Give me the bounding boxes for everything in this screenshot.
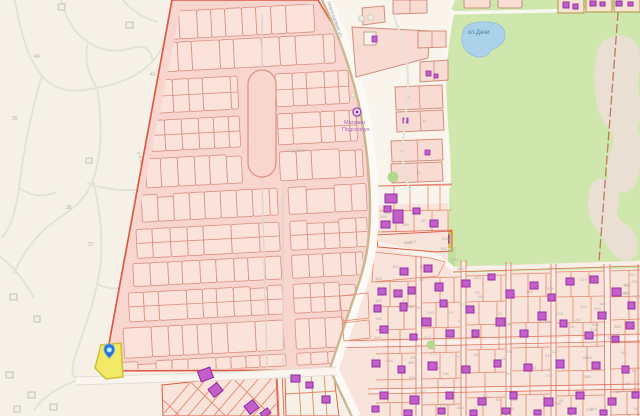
svg-text:267: 267: [575, 317, 582, 322]
svg-text:192: 192: [477, 294, 484, 299]
svg-text:112: 112: [473, 352, 480, 357]
svg-text:241: 241: [506, 349, 513, 354]
svg-text:381: 381: [416, 305, 423, 310]
svg-text:62: 62: [583, 355, 588, 360]
svg-text:346: 346: [590, 406, 597, 411]
svg-text:120: 120: [628, 272, 635, 277]
svg-text:147: 147: [419, 389, 426, 394]
svg-text:92: 92: [559, 398, 564, 403]
svg-text:183: 183: [599, 301, 606, 306]
svg-text:Магазин: Магазин: [344, 120, 365, 126]
svg-text:Садовая: Садовая: [287, 148, 306, 153]
svg-text:86: 86: [532, 365, 537, 370]
svg-text:77: 77: [457, 319, 462, 324]
svg-text:37: 37: [88, 242, 94, 248]
svg-text:147: 147: [634, 294, 640, 299]
svg-text:138: 138: [442, 371, 449, 376]
svg-text:64: 64: [496, 397, 501, 402]
svg-text:18: 18: [570, 324, 575, 329]
svg-text:226: 226: [442, 236, 449, 241]
svg-text:368: 368: [614, 324, 621, 329]
svg-text:89: 89: [625, 381, 630, 386]
svg-text:163: 163: [526, 289, 533, 294]
svg-text:269: 269: [547, 286, 554, 291]
svg-text:371: 371: [631, 279, 638, 284]
svg-text:89: 89: [548, 367, 553, 372]
svg-text:102: 102: [392, 264, 399, 269]
svg-text:169: 169: [440, 246, 447, 251]
svg-text:399: 399: [505, 322, 512, 327]
svg-text:392: 392: [407, 304, 414, 309]
svg-text:47: 47: [402, 298, 407, 303]
svg-text:39: 39: [12, 116, 18, 122]
svg-text:389: 389: [408, 360, 415, 365]
svg-text:56: 56: [510, 406, 515, 411]
svg-text:263: 263: [474, 275, 481, 280]
svg-text:214: 214: [440, 228, 447, 233]
svg-text:135: 135: [375, 316, 382, 321]
svg-text:273: 273: [430, 351, 437, 356]
svg-text:14: 14: [422, 118, 427, 123]
svg-text:52: 52: [419, 277, 424, 282]
svg-text:339: 339: [410, 355, 417, 360]
svg-text:19: 19: [455, 354, 460, 359]
svg-text:344: 344: [594, 306, 601, 311]
svg-text:кл.Дачи: кл.Дачи: [468, 30, 490, 36]
svg-text:103: 103: [375, 298, 382, 303]
svg-text:134: 134: [548, 266, 555, 271]
svg-text:63: 63: [632, 368, 637, 373]
svg-text:101: 101: [447, 310, 454, 315]
svg-text:290: 290: [440, 402, 447, 407]
svg-text:112: 112: [496, 311, 503, 316]
svg-text:Подсолнух: Подсолнух: [342, 127, 370, 133]
svg-text:269: 269: [505, 371, 512, 376]
svg-text:379: 379: [580, 277, 587, 282]
svg-text:109: 109: [580, 304, 587, 309]
svg-text:18: 18: [416, 170, 421, 175]
svg-text:76: 76: [633, 406, 638, 411]
svg-text:60: 60: [421, 218, 426, 223]
svg-text:40: 40: [34, 54, 40, 60]
svg-text:121: 121: [410, 239, 417, 244]
svg-text:376: 376: [409, 375, 416, 380]
svg-text:244: 244: [386, 358, 393, 363]
svg-text:113: 113: [615, 389, 622, 394]
svg-text:310: 310: [427, 310, 434, 315]
svg-text:320: 320: [457, 405, 464, 410]
svg-text:278: 278: [556, 311, 563, 316]
svg-text:331: 331: [592, 322, 599, 327]
svg-text:142: 142: [620, 350, 627, 355]
svg-text:24: 24: [501, 356, 506, 361]
svg-text:322: 322: [424, 335, 431, 340]
svg-text:309: 309: [451, 257, 458, 262]
svg-text:127: 127: [552, 349, 559, 354]
svg-text:92: 92: [440, 376, 445, 381]
svg-text:67: 67: [449, 402, 454, 407]
svg-text:388: 388: [584, 374, 591, 379]
svg-text:374: 374: [590, 327, 597, 332]
svg-text:41: 41: [150, 72, 156, 78]
svg-text:329: 329: [375, 276, 382, 281]
svg-text:284: 284: [622, 291, 629, 296]
svg-text:38: 38: [66, 205, 72, 211]
svg-text:140: 140: [374, 335, 381, 340]
svg-text:274: 274: [546, 373, 553, 378]
svg-text:362: 362: [457, 266, 464, 271]
